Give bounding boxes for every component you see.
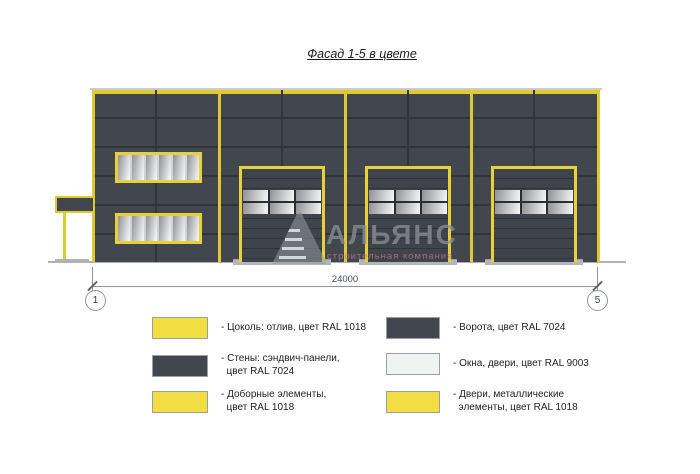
gate-glazing-pane (270, 203, 295, 214)
legend-swatch-gates (386, 317, 440, 339)
canopy-post (63, 213, 66, 261)
gate-glazing-pane (522, 190, 547, 201)
drawing-title: Фасад 1-5 в цвете (24, 47, 700, 61)
gate-glazing-pane (270, 190, 295, 201)
logo-step (282, 247, 304, 250)
gate-glazing-pane (495, 190, 520, 201)
legend-label: - Стены: сэндвич-панели, цвет RAL 7024 (221, 353, 340, 378)
entrance-step (55, 259, 89, 263)
column-trim-line (92, 90, 95, 262)
legend-swatch-metal-doors (386, 391, 440, 413)
drawing-canvas: Фасад 1-5 в цвете АЛЬЯНС строительная ко… (0, 0, 700, 474)
legend-label: - Доборные элементы, цвет RAL 1018 (221, 389, 326, 414)
gate-glazing-pane (548, 190, 573, 201)
window-pane (118, 216, 130, 241)
window-pane (132, 155, 144, 180)
sectional-gate (491, 166, 577, 262)
axis-marker-5: 5 (587, 290, 608, 311)
gate-glazing-pane (396, 203, 421, 214)
window-pane (187, 155, 199, 180)
watermark-company-name: АЛЬЯНС (326, 219, 458, 251)
gate-glazing-pane (369, 203, 394, 214)
strip-window (115, 213, 202, 244)
legend-label: - Цоколь: отлив, цвет RAL 1018 (221, 322, 366, 335)
gate-glazing-pane (495, 203, 520, 214)
logo-step (285, 238, 302, 241)
gate-glazing-pane (548, 203, 573, 214)
legend-item-plinth: - Цоколь: отлив, цвет RAL 1018 (152, 317, 366, 339)
window-pane (173, 155, 185, 180)
column-trim-line (597, 90, 600, 262)
window-pane (146, 216, 158, 241)
legend-label: - Двери, металлические элементы, цвет RA… (453, 389, 578, 414)
strip-window (115, 152, 202, 183)
gate-glazing-pane (243, 203, 268, 214)
gate-glazing-pane (422, 190, 447, 201)
logo-step (279, 256, 306, 259)
gate-glazing-pane (243, 190, 268, 201)
legend-label: - Окна, двери, цвет RAL 9003 (453, 358, 589, 371)
dimension-line (92, 286, 598, 287)
legend-swatch-plinth (152, 317, 208, 339)
legend-swatch-windows (386, 353, 440, 375)
gate-glazing (243, 190, 321, 214)
window-pane (118, 155, 130, 180)
window-pane (159, 155, 171, 180)
legend-swatch-trim (152, 391, 208, 413)
gate-glazing-pane (522, 203, 547, 214)
window-pane (187, 216, 199, 241)
gate-glazing (369, 190, 447, 214)
logo-step (288, 229, 300, 232)
gate-glazing-pane (369, 190, 394, 201)
legend-item-metal-doors: - Двери, металлические элементы, цвет RA… (386, 389, 578, 414)
window-pane (132, 216, 144, 241)
gate-glazing-pane (296, 190, 321, 201)
column-trim-line (218, 90, 221, 262)
axis-marker-1: 1 (85, 290, 106, 311)
gate-glazing-pane (396, 190, 421, 201)
legend-item-trim-elements: - Доборные элементы, цвет RAL 1018 (152, 389, 326, 414)
window-pane (146, 155, 158, 180)
column-trim-line (470, 90, 473, 262)
legend-swatch-walls (152, 355, 208, 377)
gate-glazing-pane (422, 203, 447, 214)
window-pane (173, 216, 185, 241)
entrance-canopy (55, 196, 95, 213)
legend-label: - Ворота, цвет RAL 7024 (453, 322, 565, 335)
gate-glazing (495, 190, 573, 214)
watermark-company-subtitle: строительная компания (327, 251, 453, 262)
window-pane (159, 216, 171, 241)
legend-item-windows-doors: - Окна, двери, цвет RAL 9003 (386, 353, 589, 375)
legend-item-gates: - Ворота, цвет RAL 7024 (386, 317, 565, 339)
dimension-value: 24000 (92, 274, 598, 285)
legend-item-walls: - Стены: сэндвич-панели, цвет RAL 7024 (152, 353, 340, 378)
